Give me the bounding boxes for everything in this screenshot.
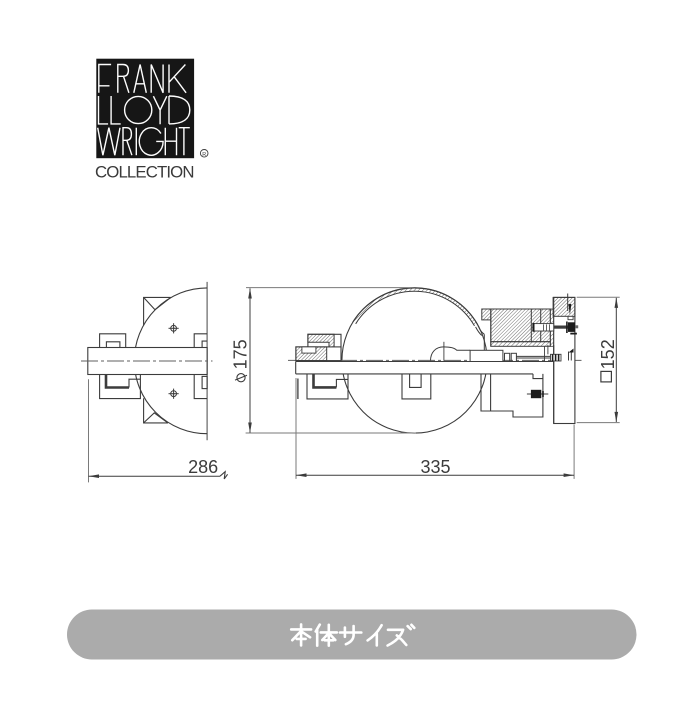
svg-text:335: 335 [420,457,450,477]
svg-text:152: 152 [598,339,618,369]
svg-text:COLLECTION: COLLECTION [95,162,195,181]
svg-text:R: R [202,152,206,158]
svg-text:286: 286 [188,457,218,477]
svg-text:175: 175 [230,339,250,369]
